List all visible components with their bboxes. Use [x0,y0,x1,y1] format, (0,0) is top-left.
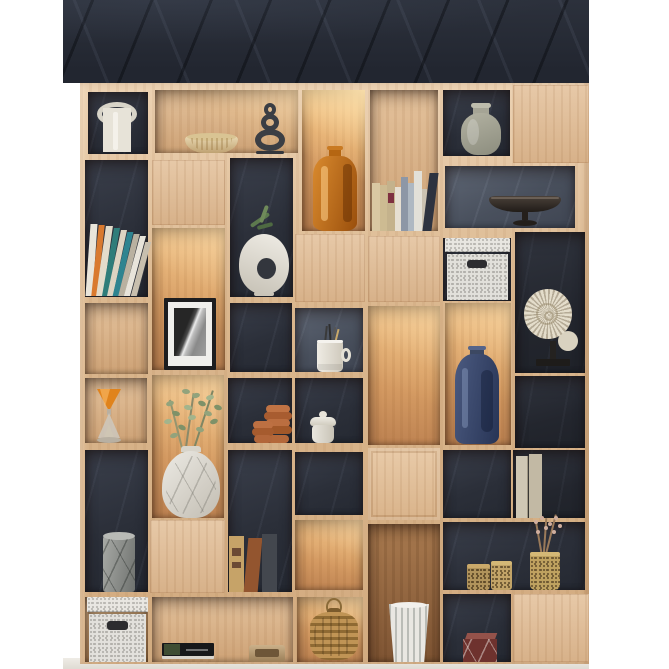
cell-empty-big [368,306,440,445]
standing-books-dark-part-rect-3 [244,538,263,592]
blue-glass-vase-part-rect-3 [462,368,468,428]
book-row-top-part-rect-3 [388,193,394,203]
ammonite-fossil-part-rect-1 [536,359,570,366]
marble-round-vase [162,446,220,518]
dried-sprigs-part-ell-5 [548,522,552,526]
black-candelabra [252,103,288,154]
leaning-books [88,222,146,296]
ammonite-fossil-part-rect-0 [550,341,556,361]
scene [0,0,669,669]
standing-books-dark [229,532,279,592]
coil-stack-short-part-rect-2 [254,435,272,443]
amber-glass-bottle-part-rect-1 [327,146,343,150]
ammonite-fossil [524,289,580,367]
eucalyptus-stems-part-ell-5 [164,418,173,424]
marble-taper-vase-part-vstripes-1 [389,604,429,662]
standing-books-dark-part-rect-1 [232,548,241,556]
amber-glass-bottle-part-rect-4 [343,164,352,222]
sage-ceramic-pot [461,103,501,155]
blue-glass-vase-part-rect-4 [481,370,493,432]
binders-pair [516,454,544,518]
mosaic-votive-right [491,561,512,590]
woven-gold-vase-part-speck-0 [530,552,560,590]
storage-box-bottom-part-rect-3 [107,621,128,630]
book-row-top-part-rect-7 [414,171,422,231]
mug-with-pencils-part-ring-6 [341,348,351,362]
sage-ceramic-pot-part-rect-1 [471,103,491,108]
wooden-bowl-part-vstripes-2 [191,138,232,150]
mosaic-votive-right-part-rect-1 [491,561,512,565]
flat-black-book [162,641,214,661]
dark-pedestal-bowl-part-rect-2 [522,211,528,220]
donut-vase [239,234,289,296]
storage-box-top [445,238,510,300]
white-lidded-jar-part-grad-2 [312,425,334,443]
hourglass-ornament-part-ell-5 [97,437,121,443]
eucalyptus-stems-part-ell-7 [169,432,178,439]
dried-sprigs-part-ell-3 [534,520,538,524]
dried-sprigs-part-ell-7 [558,524,562,528]
marble-taper-vase [389,604,429,662]
woven-gold-vase [530,552,560,590]
dark-pedestal-bowl-part-ell-3 [513,220,537,226]
cell-dark-c [443,450,511,518]
eucalyptus-stems-part-ell-11 [188,414,197,420]
cell-dark-right [515,376,585,448]
dried-sprigs-part-rect-2 [535,522,543,556]
dried-sprigs-part-ell-6 [554,516,558,520]
cell-dark-b [295,452,363,515]
book-row-top [372,165,436,231]
eucalyptus-stems-part-ell-3 [165,400,174,407]
storage-box-bottom-part-speck-0 [87,597,148,612]
cell-dark-a [230,303,292,372]
panel-left-mid [152,160,225,225]
wooden-bowl [185,131,238,153]
eucalyptus-stems-part-ell-16 [182,388,191,394]
white-lidded-jar [308,411,338,443]
panel-mid-b [368,236,440,302]
drawer-front [368,448,440,520]
rattan-lantern-part-vstripes-3 [314,616,354,656]
dried-sprigs [528,514,564,556]
mosaic-votive-left [467,564,490,590]
storage-box-top-part-rect-3 [467,260,487,268]
dried-sprigs-part-ell-8 [552,530,556,534]
black-candelabra-part-rect-3 [256,151,284,154]
framed-beach-photo-part-photo-2 [174,308,206,356]
cell-empty-mid-low [295,520,363,590]
book-row-top-part-rect-1 [380,185,387,231]
mosaic-votive-right-part-speck-0 [491,561,512,590]
loop-handle-vase-part-rect-2 [113,112,118,150]
panel-left-low [150,520,225,593]
standing-books-dark-part-rect-2 [232,562,241,568]
standing-books-dark-part-rect-4 [262,534,277,592]
eucalyptus-stems-part-ell-15 [205,394,214,401]
plant-leaves-part-rect-2 [257,222,273,230]
cell-empty-mid-low-light-glow [295,520,363,590]
marble-cylinder-vase-part-ell-2 [103,532,135,540]
woven-gold-vase-part-rect-1 [530,552,560,556]
flat-black-book-part-rect-3 [186,649,208,651]
eucalyptus-stems-part-ell-17 [213,404,222,411]
eucalyptus-stems-part-ell-14 [196,426,205,433]
door-bottom-right [513,594,589,662]
marble-cylinder-vase [103,535,135,592]
cell-empty-big-light-glow [368,306,440,445]
marble-round-vase-part-veins-2 [166,456,216,514]
framed-beach-photo [164,298,216,370]
eucalyptus-stems-part-ell-9 [192,392,201,399]
stone-dish-part-rect-1 [255,649,279,657]
red-marble-box [463,633,499,662]
dried-sprigs-part-ell-4 [540,516,544,520]
donut-vase-part-ell-2 [257,258,276,279]
marble-cylinder-vase-part-veins-1 [103,535,135,592]
mug-with-pencils-part-rect-7 [318,364,342,370]
binders-pair-part-rect-2 [529,454,542,518]
mosaic-votive-left-part-rect-1 [467,564,490,568]
dried-sprigs-part-ell-10 [544,526,548,530]
blue-glass-vase [455,346,499,444]
mug-with-pencils [317,336,351,372]
red-marble-box-part-veins-2 [463,639,497,662]
mug-with-pencils-part-rect-5 [317,340,343,343]
eucalyptus-stems-part-ell-10 [197,400,206,408]
storage-box-bottom [87,597,148,662]
amber-glass-bottle-part-rect-3 [321,166,328,221]
book-row-top-part-rect-2 [387,181,395,231]
loop-handle-vase [97,100,137,152]
stone-dish [249,645,285,662]
coil-stack-short [252,421,274,443]
amber-glass-bottle [313,146,357,231]
panel-top-right [513,85,589,163]
black-candelabra-part-ring-2 [255,129,285,151]
storage-box-top-part-speck-0 [445,238,510,252]
book-row-top-part-rect-5 [401,177,408,231]
photo-canvas [0,0,669,669]
dried-sprigs-part-ell-9 [536,530,540,534]
flat-black-book-part-rect-2 [164,644,180,655]
panel-mid-a [295,234,365,302]
ammonite-fossil-part-ring-6 [544,311,554,321]
book-row-top-part-rect-0 [372,183,380,231]
hourglass-ornament [96,389,122,443]
cell-empty-left [85,303,148,374]
blue-glass-vase-part-rect-1 [468,346,486,350]
dark-pedestal-bowl [489,196,561,226]
sage-ceramic-pot-part-ell-3 [467,119,479,145]
wall [63,0,589,83]
eucalyptus-stems-part-ell-13 [209,418,218,425]
rattan-lantern [310,598,358,662]
marble-taper-vase-part-ell-2 [391,602,427,608]
dark-pedestal-bowl-part-rect-1 [491,197,559,199]
